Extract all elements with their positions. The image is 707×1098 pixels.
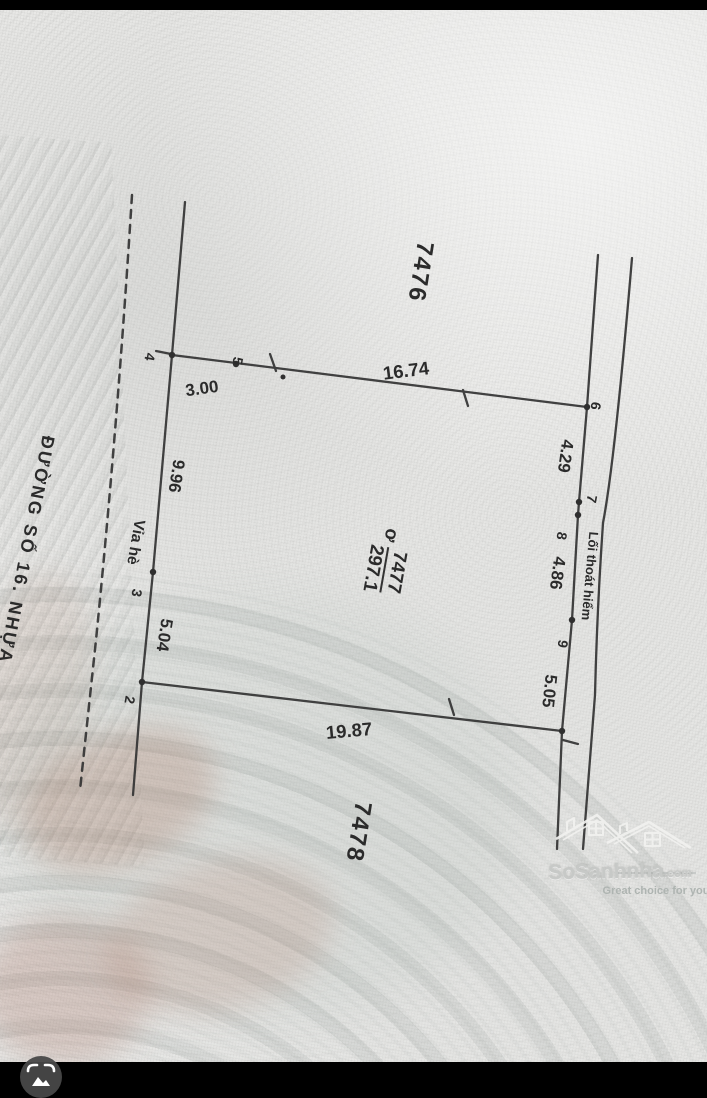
letterbox-top	[0, 0, 707, 10]
parcel-fraction: 7477 297.1	[358, 543, 411, 598]
land-use-code: ơ	[379, 527, 403, 544]
letterbox-bottom	[0, 1062, 707, 1080]
screenshot-icon	[20, 1056, 62, 1098]
watermark-brand-name: SoSanhnha	[548, 859, 664, 884]
dim-bottom-edge: 19.87	[325, 718, 373, 744]
escape-strip-inner-line-lower	[557, 731, 562, 849]
watermark-brand-suffix: .com	[664, 866, 692, 880]
vertex-dots	[139, 352, 590, 734]
dim-tick	[563, 740, 578, 744]
boundary-extension-top	[172, 202, 185, 355]
screenshot-button[interactable]	[20, 1056, 62, 1098]
survey-photo: ĐƯỜNG SỐ 16. NHỰA Vỉa hè Lối thoát hiểm …	[0, 10, 707, 1063]
escape-strip-inner-line	[587, 255, 598, 407]
watermark-brand: SoSanhnha.com	[548, 859, 692, 886]
dim-right-lower: 5.05	[537, 673, 560, 708]
watermark-tagline: Great choice for you	[603, 885, 707, 897]
dim-tick	[449, 699, 454, 715]
